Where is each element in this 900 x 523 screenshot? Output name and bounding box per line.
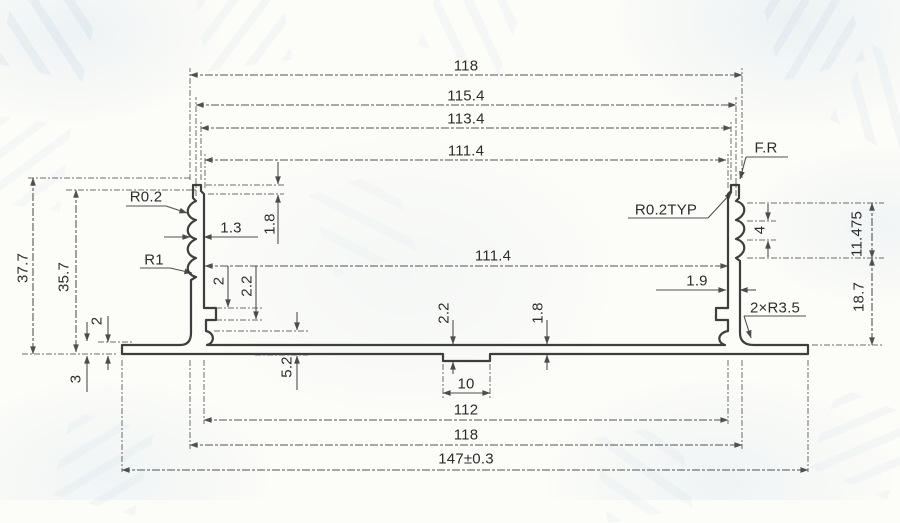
profile-drawing-canvas	[0, 0, 900, 500]
note-corner-radius-2xr35: 2×R3.5	[750, 301, 800, 316]
dim-top-overall-width: 118	[454, 59, 479, 74]
dim-floor-thickness-18: 1.8	[531, 302, 546, 323]
dim-rib-bottom-52: 5.2	[280, 356, 295, 377]
dim-inner-height-357: 35.7	[57, 262, 72, 292]
dim-top-inner-width: 111.4	[448, 144, 484, 159]
dim-serration-pitch-4: 4	[753, 226, 768, 235]
dim-cavity-inner-width: 111.4	[475, 249, 511, 264]
dim-overall-flange-147: 147±0.3	[438, 452, 494, 467]
dim-top-serration-width: 115.4	[447, 89, 484, 104]
dim-top-step-width: 113.4	[447, 112, 484, 127]
dim-overall-height-377: 37.7	[16, 253, 31, 283]
dim-top-step-18: 1.8	[263, 213, 278, 234]
dim-boss-width-10: 10	[457, 377, 474, 392]
dim-wall-thickness-19: 1.9	[686, 274, 707, 289]
dim-bottom-inner-112: 112	[454, 403, 479, 418]
note-groove-radius-r02: R0.2	[130, 190, 163, 205]
dim-wall-thickness-13: 1.3	[220, 221, 241, 236]
note-groove-radius-r1: R1	[144, 253, 164, 268]
dim-rib-offset-2: 2	[212, 277, 227, 286]
note-full-radius: F.R	[754, 141, 777, 156]
scanned-technical-drawing: { "drawing": { "title": "aluminium extru…	[0, 0, 900, 500]
dim-flange-tip-2: 2	[90, 317, 105, 326]
dim-serration-zone-11475: 11.475	[850, 211, 865, 257]
dim-rib-height-22: 2.2	[240, 275, 255, 296]
note-radius-r02typ: R0.2TYP	[635, 203, 697, 218]
dim-bottom-outer-118: 118	[454, 428, 479, 443]
dim-boss-thickness-22: 2.2	[437, 302, 452, 323]
dim-lower-wall-187: 18.7	[852, 282, 867, 312]
dim-flange-3: 3	[69, 375, 84, 384]
